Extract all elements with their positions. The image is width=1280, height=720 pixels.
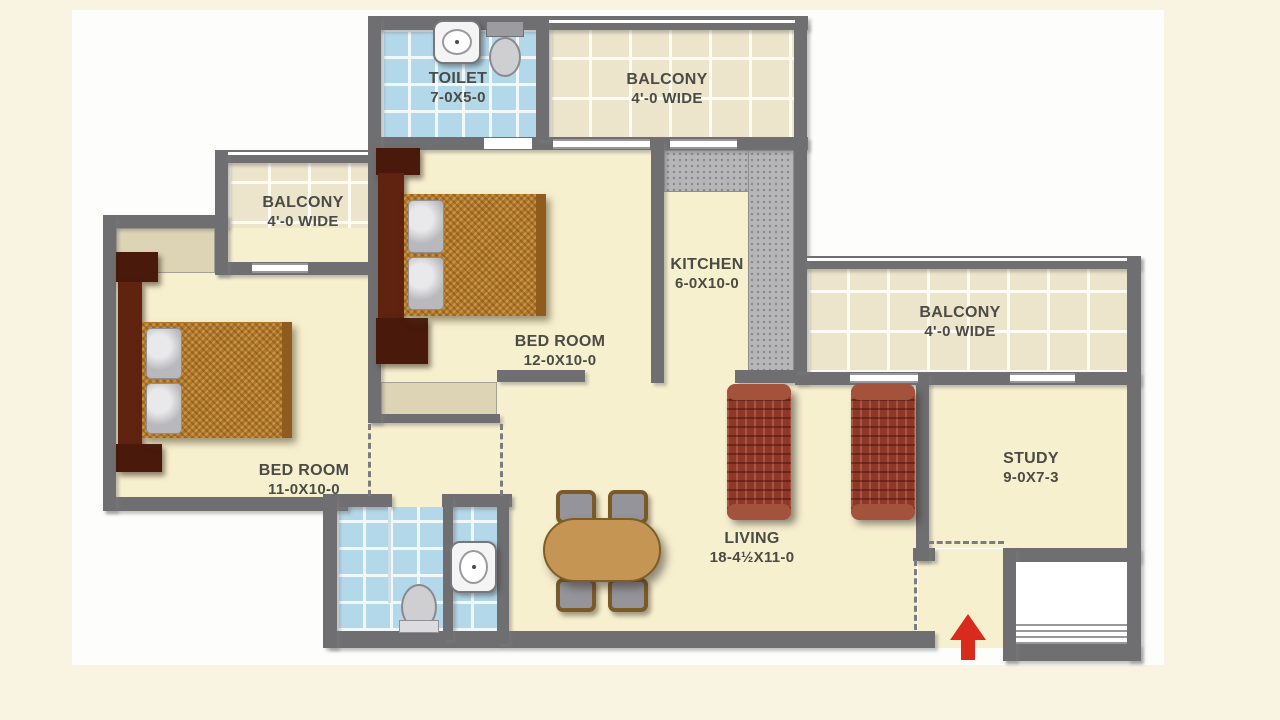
wall [536, 17, 549, 140]
window-marker [807, 258, 1127, 261]
wall [103, 215, 116, 511]
room-dims: 7-0X5-0 [429, 88, 487, 107]
door-opening-dashed [914, 560, 917, 630]
wall [1127, 256, 1141, 661]
wardrobe-niche-middle [381, 382, 497, 415]
room-name: KITCHEN [670, 255, 743, 274]
room-name: BALCONY [626, 70, 707, 89]
door-opening-dashed [500, 424, 503, 496]
sliding-window-marker [670, 139, 737, 149]
sliding-door-marker [850, 373, 918, 383]
bed-pillow [146, 383, 182, 434]
wall [323, 494, 337, 648]
wall [1003, 548, 1140, 562]
sofa-armrest [851, 504, 915, 520]
room-name: LIVING [710, 529, 795, 548]
room-label-balcony-left: BALCONY 4'-0 WIDE [262, 193, 343, 231]
door-opening-dashed [928, 541, 1004, 544]
room-name: STUDY [1003, 449, 1059, 468]
shower-partition [388, 507, 391, 603]
room-name: BALCONY [919, 303, 1000, 322]
sofa [727, 386, 791, 518]
toilet-wc-tank [486, 21, 524, 37]
toilet-wc [489, 37, 521, 77]
bed-headboard [118, 282, 142, 446]
wall [794, 21, 807, 372]
floor-plan-page: TOILET 7-0X5-0 BALCONY 4'-0 WIDE BALCONY… [0, 0, 1280, 720]
washbasin [433, 20, 481, 64]
room-dims: 4'-0 WIDE [919, 322, 1000, 341]
wall [497, 370, 585, 382]
room-dims: 4'-0 WIDE [262, 212, 343, 231]
dining-table [543, 518, 661, 582]
bed-pillow [408, 200, 444, 253]
bed-pillow [408, 257, 444, 310]
wall [497, 494, 509, 644]
washbasin-bowl [459, 550, 488, 584]
wall [1003, 548, 1016, 661]
nightstand [116, 444, 162, 472]
sofa-armrest [727, 504, 791, 520]
room-label-balcony-right: BALCONY 4'-0 WIDE [919, 303, 1000, 341]
washbasin [450, 541, 497, 593]
wall [795, 372, 1140, 385]
kitchen-counter-right [748, 150, 794, 372]
room-label-study: STUDY 9-0X7-3 [1003, 449, 1059, 487]
nightstand [376, 148, 420, 175]
wall [916, 372, 929, 561]
room-label-bedroom-middle: BED ROOM 12-0X10-0 [515, 332, 605, 370]
window-marker [549, 20, 795, 23]
nightstand [376, 318, 428, 364]
room-label-kitchen: KITCHEN 6-0X10-0 [670, 255, 743, 293]
room-name: TOILET [429, 69, 487, 88]
sliding-door-marker [252, 263, 308, 273]
sliding-window-marker [1010, 373, 1075, 383]
nightstand [116, 252, 158, 282]
room-label-balcony-top: BALCONY 4'-0 WIDE [626, 70, 707, 108]
wall [368, 414, 500, 423]
sofa-armrest [851, 384, 915, 400]
room-dims: 6-0X10-0 [670, 274, 743, 293]
entrance-arrow-icon [950, 614, 986, 640]
room-name: BED ROOM [259, 461, 349, 480]
wall [103, 497, 348, 511]
room-dims: 4'-0 WIDE [626, 89, 707, 108]
staircase-steps [1016, 620, 1127, 644]
entrance-arrow-stem [961, 640, 975, 660]
wall [1003, 644, 1140, 661]
bed-headboard [378, 173, 404, 319]
room-name: BED ROOM [515, 332, 605, 351]
wall [651, 140, 664, 383]
bed-pillow [146, 328, 182, 379]
room-label-toilet-top: TOILET 7-0X5-0 [429, 69, 487, 107]
room-label-bedroom-left: BED ROOM 11-0X10-0 [259, 461, 349, 499]
washbasin-bowl [442, 29, 472, 55]
wall [103, 215, 228, 228]
room-name: BALCONY [262, 193, 343, 212]
wall [327, 631, 935, 648]
room-dims: 18-4½X11-0 [710, 548, 795, 567]
window-marker [228, 152, 368, 155]
dining-chair [608, 578, 648, 612]
room-dims: 11-0X10-0 [259, 480, 349, 499]
room-dims: 9-0X7-3 [1003, 468, 1059, 487]
sliding-window-marker [553, 139, 650, 149]
sofa-armrest [727, 384, 791, 400]
door-opening [484, 138, 532, 149]
toilet-wc-base [399, 620, 439, 633]
door-opening-dashed [368, 424, 371, 496]
room-label-living: LIVING 18-4½X11-0 [710, 529, 795, 567]
wall [215, 150, 228, 275]
sofa [851, 386, 915, 518]
dining-chair [556, 578, 596, 612]
room-dims: 12-0X10-0 [515, 351, 605, 370]
